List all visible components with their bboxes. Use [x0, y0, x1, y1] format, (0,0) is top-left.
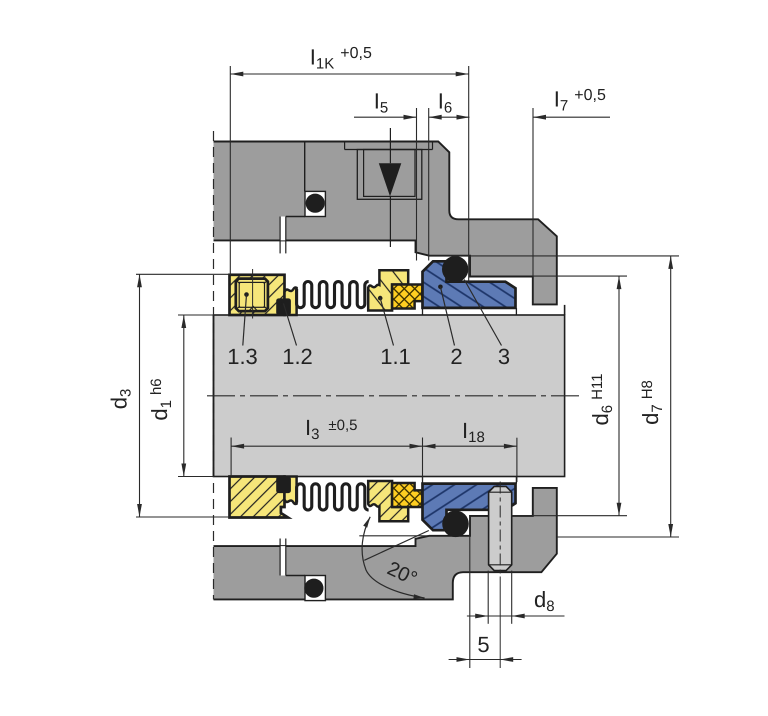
svg-text:d3: d3 — [107, 389, 135, 410]
svg-text:I5: I5 — [374, 89, 388, 117]
svg-text:3: 3 — [498, 344, 510, 369]
svg-text:1.3: 1.3 — [227, 344, 258, 369]
svg-text:1.2: 1.2 — [282, 344, 313, 369]
svg-text:I1K+0,5: I1K+0,5 — [310, 45, 372, 73]
svg-text:d6H11: d6H11 — [588, 374, 616, 426]
svg-text:1.1: 1.1 — [380, 344, 411, 369]
svg-text:d1h6: d1h6 — [147, 378, 175, 420]
svg-text:±0,5: ±0,5 — [328, 417, 357, 434]
svg-text:I7+0,5: I7+0,5 — [554, 87, 606, 115]
svg-text:d7H8: d7H8 — [638, 380, 666, 425]
svg-text:d8: d8 — [534, 587, 555, 615]
svg-text:2: 2 — [450, 344, 462, 369]
svg-text:I6: I6 — [438, 89, 452, 117]
svg-text:5: 5 — [477, 632, 489, 657]
